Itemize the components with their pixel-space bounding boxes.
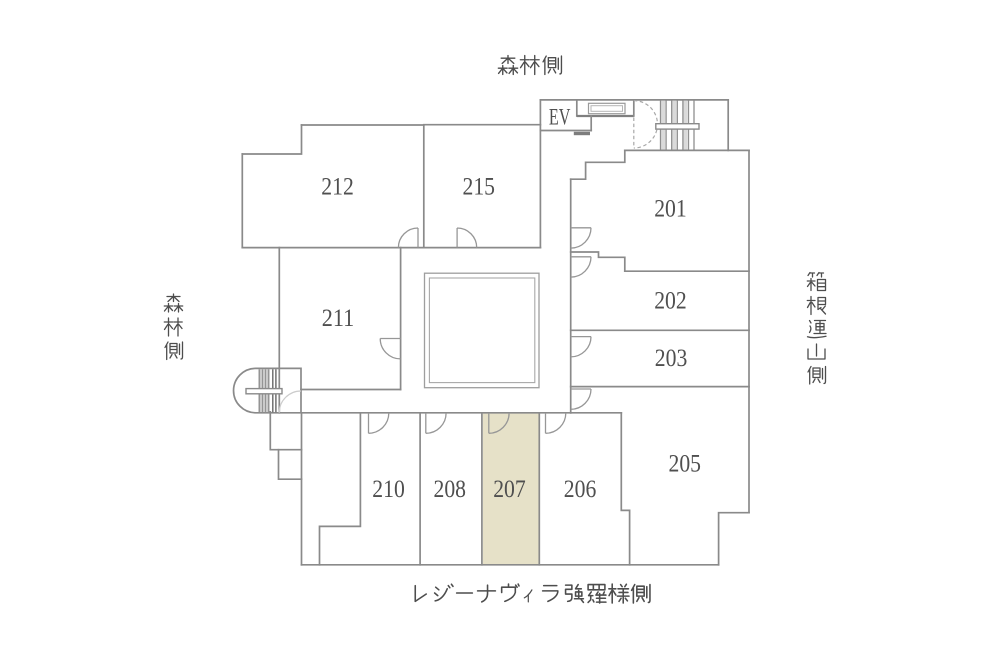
svg-text:210: 210 [372,476,405,503]
svg-text:203: 203 [655,345,688,372]
svg-text:212: 212 [321,173,354,200]
svg-text:201: 201 [654,196,687,223]
svg-text:202: 202 [654,287,687,314]
svg-text:EV: EV [549,105,571,130]
svg-text:207: 207 [493,476,526,503]
svg-text:215: 215 [463,173,496,200]
svg-text:205: 205 [669,451,702,478]
svg-text:211: 211 [322,305,355,332]
svg-text:208: 208 [434,476,467,503]
svg-text:206: 206 [564,476,597,503]
